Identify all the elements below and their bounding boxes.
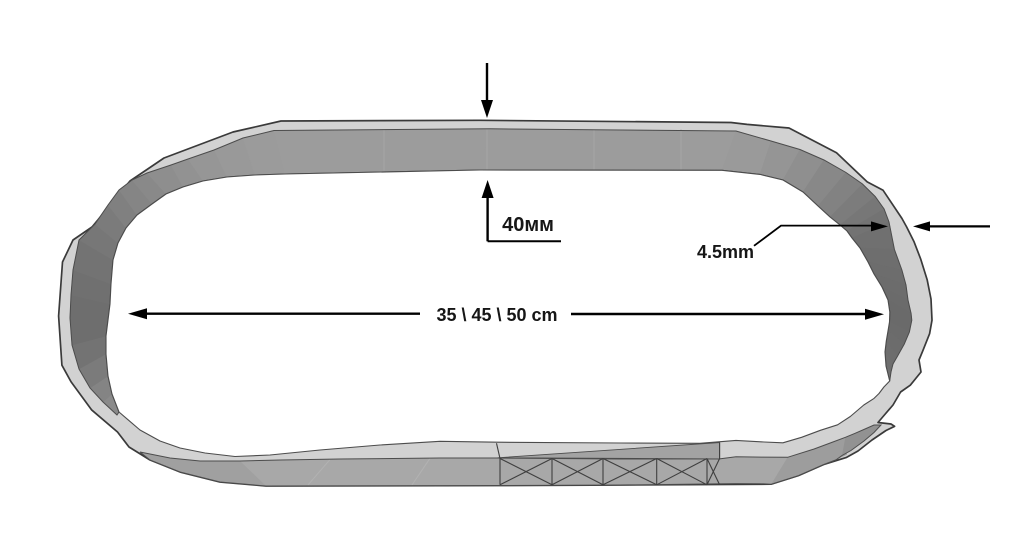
svg-text:4.5mm: 4.5mm	[697, 242, 754, 262]
svg-text:35 \ 45 \ 50 cm: 35 \ 45 \ 50 cm	[436, 305, 557, 325]
svg-text:40мм: 40мм	[502, 214, 554, 236]
